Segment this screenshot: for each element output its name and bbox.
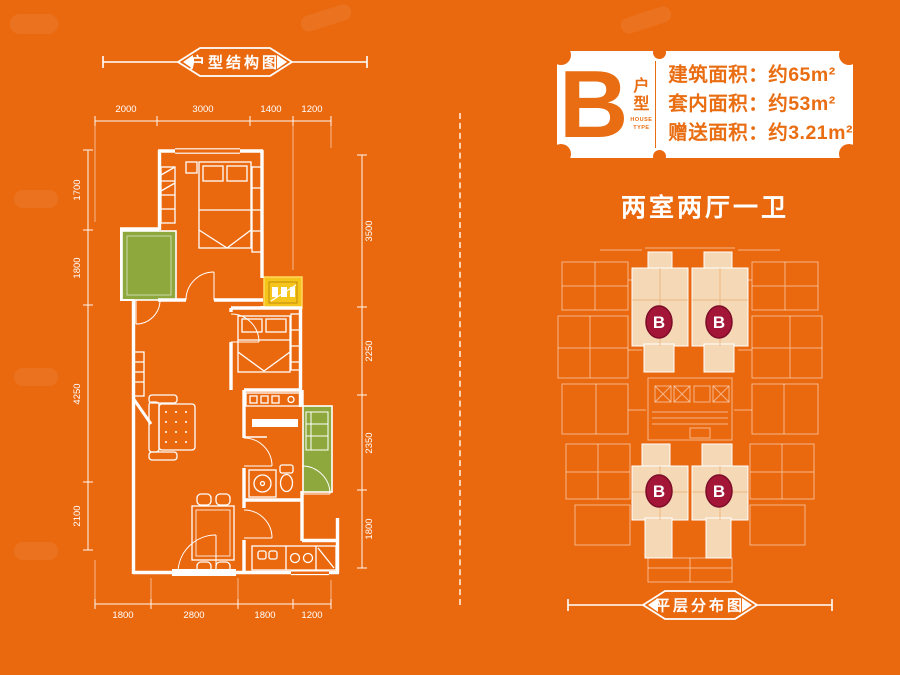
washing-machine xyxy=(249,470,276,497)
layout-summary: 两室两厅一卫 xyxy=(555,188,855,224)
watermark xyxy=(619,4,673,35)
unit-marker-label: B xyxy=(653,313,665,332)
dim-bottom-3: 1800 xyxy=(254,610,275,621)
watermark xyxy=(14,542,58,560)
floorplan-drawing: 2000 3000 1400 1200 1800 2800 1800 1200 … xyxy=(70,85,405,645)
dimension-lines xyxy=(83,116,367,609)
sofa xyxy=(149,395,195,460)
master-closet xyxy=(161,167,175,223)
dim-bottom-4: 1200 xyxy=(301,610,322,621)
second-wardrobe xyxy=(291,314,300,370)
badge-corner-notch xyxy=(839,45,859,65)
walls xyxy=(120,149,339,575)
watermark xyxy=(10,14,58,34)
badge-divider xyxy=(655,61,657,148)
spec-built-area: 建筑面积：约65m² xyxy=(668,61,853,90)
floor-plate-diagram: B B B B xyxy=(548,244,852,588)
nightstand xyxy=(186,162,197,173)
toilet xyxy=(280,465,293,492)
dim-right-4: 1800 xyxy=(364,518,375,539)
dim-left-4: 2100 xyxy=(72,505,83,526)
badge-edge-notch xyxy=(653,46,666,59)
master-bed xyxy=(199,162,251,248)
bath-shelf xyxy=(252,419,298,427)
area-specs: 建筑面积：约65m² 套内面积：约53m² 赠送面积：约3.21m² xyxy=(660,51,853,158)
bath-vanity xyxy=(246,393,300,406)
dining-table xyxy=(192,494,234,573)
furniture xyxy=(133,162,336,573)
badge-edge-notch xyxy=(653,150,666,163)
dim-top-4: 1200 xyxy=(301,104,322,115)
unit-markers: B B B B xyxy=(646,306,732,507)
dim-right-3: 2350 xyxy=(364,432,375,453)
brochure-page: 户型结构图 2000 3000 1400 1200 1800 2800 1800… xyxy=(0,0,900,675)
type-label-cn: 户 xyxy=(633,78,649,96)
unit-marker-label: B xyxy=(713,482,725,501)
unit-type-letter: B xyxy=(557,51,630,158)
dim-top-3: 1400 xyxy=(260,104,281,115)
badge-corner-notch xyxy=(551,45,571,65)
type-label-en: HOUSE xyxy=(630,117,652,123)
plate-outline xyxy=(558,248,822,582)
section-divider xyxy=(459,113,461,605)
bay-window-highlight xyxy=(264,277,302,308)
dim-left-1: 1700 xyxy=(72,179,83,200)
dim-left-2: 1800 xyxy=(72,257,83,278)
spec-inner-area: 套内面积：约53m² xyxy=(668,90,853,119)
badge-corner-notch xyxy=(839,144,859,164)
unit-type-label: 户 型 HOUSE TYPE xyxy=(630,51,652,158)
badge-corner-notch xyxy=(551,144,571,164)
second-bed xyxy=(238,316,290,372)
highlighted-units xyxy=(632,252,748,558)
tv-cabinet xyxy=(133,352,151,424)
dim-top-1: 2000 xyxy=(115,104,136,115)
watermark xyxy=(14,190,58,208)
floorplan-ribbon-title: 户型结构图 xyxy=(190,54,280,72)
dim-right-2: 2250 xyxy=(364,340,375,361)
kitchen-counter xyxy=(252,546,336,570)
plate-ribbon: 平层分布图 xyxy=(565,587,835,623)
dim-right-1: 3500 xyxy=(364,220,375,241)
watermark xyxy=(14,368,58,386)
dim-top-2: 3000 xyxy=(192,104,213,115)
unit-marker-label: B xyxy=(713,313,725,332)
plate-ribbon-title: 平层分布图 xyxy=(655,597,745,615)
watermark xyxy=(299,2,353,33)
floorplan-ribbon: 户型结构图 xyxy=(100,44,370,80)
dim-left-3: 4250 xyxy=(72,383,83,404)
balcony-left xyxy=(122,231,176,300)
unit-type-badge: B 户 型 HOUSE TYPE 建筑面积：约65m² 套内面积：约53m² 赠… xyxy=(557,51,853,158)
spec-gift-area: 赠送面积：约3.21m² xyxy=(668,119,853,148)
dim-bottom-2: 2800 xyxy=(183,610,204,621)
unit-marker-label: B xyxy=(653,482,665,501)
dim-bottom-1: 1800 xyxy=(112,610,133,621)
